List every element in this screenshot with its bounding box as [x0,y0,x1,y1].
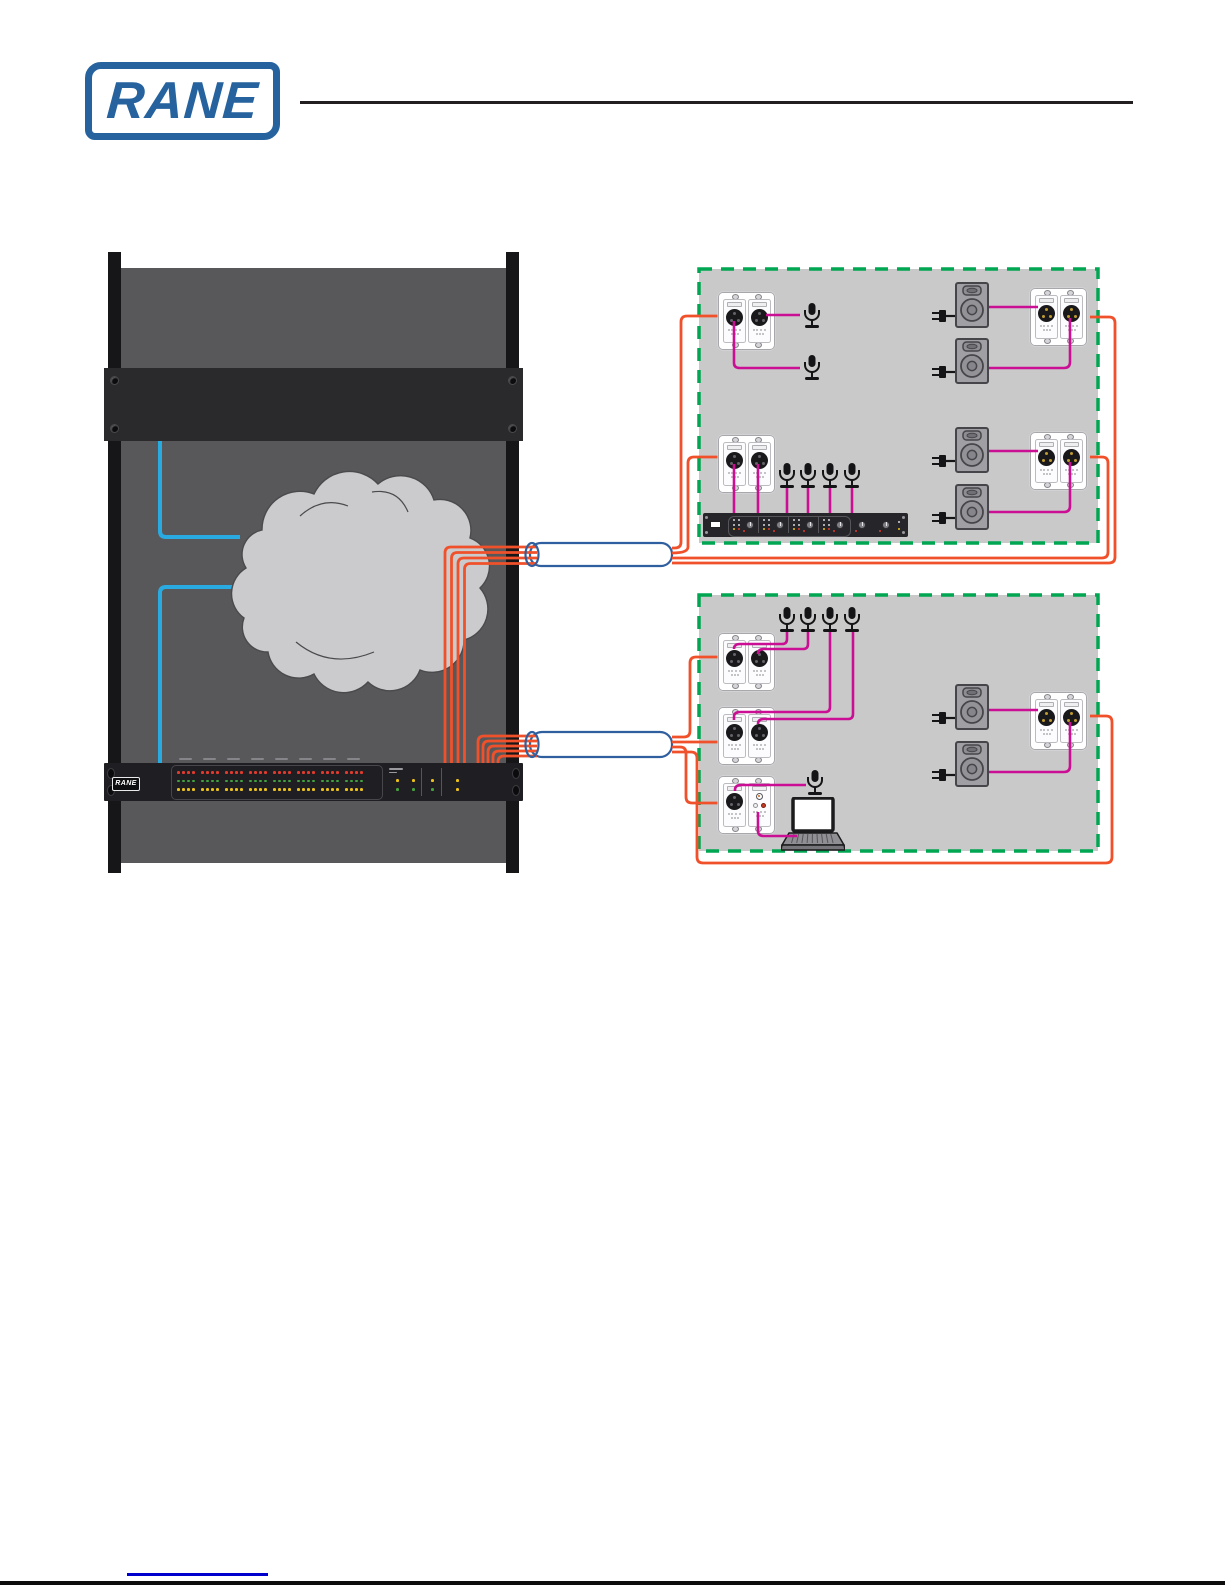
mixer-screw-icon [902,516,905,519]
label-strip [1039,702,1054,707]
mixer-led [798,524,800,526]
meter-led [192,788,195,791]
meter-label-dash [323,758,336,760]
module-marks [728,472,741,474]
meter-led [345,771,348,774]
xlr-connector-icon [1038,709,1055,726]
meter-led [355,780,358,783]
mixer-led [823,519,825,521]
rca-laptop-module [748,783,771,827]
xlr-input-module [723,442,746,486]
mixer-led [738,519,740,521]
module-marks [728,813,741,815]
meter-led [235,780,238,783]
meter-led [336,788,339,791]
module-marks [728,670,741,672]
speaker-icon [955,338,989,384]
meter-led [235,771,238,774]
plate-screw-icon [1067,338,1074,344]
meter-led [201,780,204,783]
label-strip [1064,702,1079,707]
meter-led [249,788,252,791]
module-marks [1068,329,1076,331]
status-led [431,788,434,791]
meter-led [326,771,329,774]
meter-led [187,780,190,783]
meter-label-dash [203,758,216,760]
mixer-led [823,528,825,530]
plate-screw-icon [1044,338,1051,344]
meter-led [211,780,214,783]
xlr-connector-icon [1063,305,1080,322]
room-1-boundary [699,269,1098,543]
meter-label-dash [347,758,360,760]
power-plug-icon [931,768,955,782]
mixer-knob-icon [882,521,890,529]
xlr-connector-icon [726,793,743,810]
mixer-screw-icon [902,531,905,534]
microphone-icon [819,606,841,634]
meter-led [312,771,315,774]
module-marks [753,329,766,331]
meter-led [312,788,315,791]
label-strip [727,643,742,648]
xlr-output-module [1060,699,1083,743]
plate-screw-icon [755,485,762,491]
screw-icon [508,376,517,385]
meter-led [355,788,358,791]
meter-led [254,780,257,783]
module-marks [1043,733,1051,735]
xlr-input-module [748,714,771,758]
mixer-led [763,528,765,530]
microphone-icon [776,462,798,490]
meter-led [254,771,257,774]
meter-led [187,771,190,774]
meter-led [321,780,324,783]
meter-led [264,788,267,791]
meter-led [177,771,180,774]
plate-screw-icon [732,635,739,641]
meter-label-dash [275,758,288,760]
meter-led [326,780,329,783]
meter-led [249,780,252,783]
module-marks [753,744,766,746]
meter-led [307,788,310,791]
cat5-bundle-1-end [526,543,539,566]
meter-led [345,788,348,791]
meter-led [187,788,190,791]
module-marks [756,674,764,676]
meter-led [240,788,243,791]
laptop-icon [781,797,845,853]
meter-label-dash [251,758,264,760]
plate-screw-icon [1067,742,1074,748]
rane-logo-text: RANE [105,75,260,127]
status-led [456,779,459,782]
label-strip [752,302,767,307]
module-marks [731,817,739,819]
module-marks [1040,469,1053,471]
meter-label-dash [299,758,312,760]
module-marks [1065,469,1078,471]
plate-screw-icon [732,294,739,300]
meter-led [307,771,310,774]
mixer-logo [710,521,721,528]
meter-led [326,788,329,791]
screw-icon [110,376,119,385]
cat5-cables [445,316,1115,863]
meter-led [177,788,180,791]
mixer-led [828,524,830,526]
plate-screw-icon [755,683,762,689]
microphone-icon [804,769,826,797]
meter-led [201,788,204,791]
plate-screw-icon [755,709,762,715]
plate-screw-icon [732,757,739,763]
plate-screw-icon [1044,482,1051,488]
plate-screw-icon [1067,694,1074,700]
meter-led [177,780,180,783]
cat5-bundle-1 [530,543,672,566]
mixer-led [793,528,795,530]
label-strip [752,643,767,648]
meter-led [216,771,219,774]
meter-led [331,788,334,791]
xlr-input-module [748,640,771,684]
meter-led [216,780,219,783]
meter-led [360,780,363,783]
mixer-knob-icon [858,521,866,529]
speaker-icon [955,282,989,328]
xlr-output-module [1035,439,1058,483]
mixer-led [879,530,881,532]
xlr-input-module [723,783,746,827]
microphone-icon [801,354,823,382]
meter-led [278,771,281,774]
power-plug-icon [931,365,955,379]
module-marks [728,329,741,331]
xlr-input-module [723,640,746,684]
microphone-icon [776,606,798,634]
label-strip [727,445,742,450]
meter-led [350,780,353,783]
plate-screw-icon [1044,742,1051,748]
mixer-knob-icon [836,521,844,529]
speaker-icon [955,741,989,787]
meter-label-dash [179,758,192,760]
plate-screw-icon [755,294,762,300]
mixer-led [763,524,765,526]
footer-link-underline[interactable] [127,1573,268,1576]
status-led [412,779,415,782]
xlr-connector-icon [726,650,743,667]
device-micro-label [389,768,403,770]
plate-screw-icon [1067,482,1074,488]
mixer-channel-divider [818,517,819,533]
status-led [396,779,399,782]
xlr-input-module [723,299,746,343]
plate-screw-icon [1067,290,1074,296]
meter-led [288,780,291,783]
meter-led [264,771,267,774]
module-marks [731,476,739,478]
mixer-led [833,530,835,532]
label-strip [727,786,742,791]
wallplate-room1-output-a [1030,288,1087,346]
mixer-channel-frame [728,516,851,537]
plate-screw-icon [755,757,762,763]
microphone-icon [801,302,823,330]
speaker-icon [955,484,989,530]
plate-screw-icon [1067,434,1074,440]
module-marks [1065,325,1078,327]
mixer-screw-icon [705,516,708,519]
plate-screw-icon [755,342,762,348]
xlr-output-module [1060,295,1083,339]
wallplate-room1-input-b [718,435,775,493]
mixer-led [738,524,740,526]
xlr-output-module [1060,439,1083,483]
xlr-connector-icon [726,309,743,326]
microphone-icon [797,606,819,634]
xlr-output-module [1035,295,1058,339]
mixer-screw-icon [705,531,708,534]
microphone-icon [819,462,841,490]
module-marks [1043,329,1051,331]
power-plug-icon [931,309,955,323]
page-bottom-border [0,1581,1225,1585]
meter-led [182,780,185,783]
mixer-led [793,524,795,526]
meter-led [273,771,276,774]
meter-led [345,780,348,783]
meter-led [288,771,291,774]
meter-led [283,780,286,783]
meter-led [278,780,281,783]
mixer-led [768,528,770,530]
label-strip [752,786,767,791]
cat5-bundle-2 [530,732,672,757]
module-marks [1040,729,1053,731]
mixer-led [798,519,800,521]
plate-screw-icon [732,342,739,348]
mixer-knob-icon [746,521,754,529]
meter-led [273,788,276,791]
meter-led [331,780,334,783]
meter-led [182,771,185,774]
plate-screw-icon [732,826,739,832]
module-marks [753,670,766,672]
meter-led [225,780,228,783]
xlr-input-module [748,442,771,486]
wallplate-room2-input-c [718,776,775,834]
meter-led [350,771,353,774]
meter-led [350,788,353,791]
mixer-led [798,528,800,530]
plate-screw-icon [732,683,739,689]
status-led [396,788,399,791]
meter-led [302,788,305,791]
meter-led [273,780,276,783]
plate-screw-icon [1044,434,1051,440]
power-plug-icon [931,711,955,725]
plate-screw-icon [732,778,739,784]
module-marks [731,674,739,676]
rane-logo: RANE [85,62,280,140]
mixer-channel-divider [758,517,759,533]
plate-screw-icon [755,778,762,784]
automixer-device [703,513,908,537]
label-strip [1064,298,1079,303]
meter-led [321,788,324,791]
meter-led [278,788,281,791]
meter-led [321,771,324,774]
meter-led [288,788,291,791]
module-marks [753,811,766,813]
xlr-connector-icon [751,724,768,741]
label-strip [727,302,742,307]
label-strip [752,445,767,450]
mixer-led [773,530,775,532]
meter-led [259,780,262,783]
mixer-knob-icon [806,521,814,529]
meter-led [211,788,214,791]
meter-led [360,788,363,791]
rack-ear-hole [512,768,520,779]
xlr-connector-icon [1038,449,1055,466]
meter-led [225,771,228,774]
module-marks [1068,473,1076,475]
device-logo: RANE [112,777,140,791]
rack-panel-bottom [121,801,506,863]
plate-screw-icon [732,437,739,443]
xlr-connector-icon [751,452,768,469]
mixer-led [823,524,825,526]
rack-ear-hole [512,785,520,796]
meter-label-dash [227,758,240,760]
status-divider [441,768,442,796]
microphone-icon [797,462,819,490]
wallplate-room2-input-a [718,633,775,691]
status-led [456,788,459,791]
meter-led [216,788,219,791]
meter-led [192,771,195,774]
meter-led [206,771,209,774]
mixer-led [828,528,830,530]
status-led [412,788,415,791]
microphone-icon [841,462,863,490]
module-marks [756,476,764,478]
xlr-connector-icon [751,309,768,326]
page: RANE RANE [0,0,1225,1585]
status-divider [421,768,422,796]
mixer-led [743,530,745,532]
meter-led [297,771,300,774]
wallplate-room2-input-b [718,707,775,765]
xlr-connector-icon [726,452,743,469]
meter-led [192,780,195,783]
meter-led [302,771,305,774]
mixer-knob-icon [776,521,784,529]
wallplate-room1-output-b [1030,432,1087,490]
label-strip [727,717,742,722]
mixer-led [768,519,770,521]
module-marks [728,744,741,746]
module-marks [756,815,764,817]
meter-led [254,788,257,791]
wallplate-room2-output-a [1030,692,1087,750]
screw-icon [110,424,119,433]
xlr-input-module [748,299,771,343]
meter-led [336,771,339,774]
meter-led [297,788,300,791]
module-marks [1068,733,1076,735]
meter-led [307,780,310,783]
module-marks [1043,473,1051,475]
rack-panel-middle [121,441,506,763]
xlr-input-module [723,714,746,758]
mixer-led [763,519,765,521]
xlr-connector-icon [751,650,768,667]
module-marks [756,333,764,335]
plate-screw-icon [1044,694,1051,700]
screw-icon [508,424,517,433]
xlr-output-module [1035,699,1058,743]
mixer-led [768,524,770,526]
mixer-led [855,530,857,532]
module-marks [731,748,739,750]
meter-led [283,788,286,791]
meter-led [312,780,315,783]
audio-processor-device: RANE [104,763,523,801]
meter-led [211,771,214,774]
meter-led [240,780,243,783]
mixer-channel-divider [788,517,789,533]
plate-screw-icon [1044,290,1051,296]
xlr-connector-icon [1038,305,1055,322]
meter-led [355,771,358,774]
plate-screw-icon [755,437,762,443]
mixer-led [898,528,900,530]
meter-led [297,780,300,783]
meter-led [206,780,209,783]
meter-led [259,788,262,791]
analog-audio-cables [734,307,1070,836]
plate-screw-icon [755,826,762,832]
module-marks [1065,729,1078,731]
label-strip [1039,442,1054,447]
meter-led [235,788,238,791]
wallplate-room1-input-a [718,292,775,350]
meter-led [259,771,262,774]
module-marks [756,748,764,750]
power-plug-icon [931,454,955,468]
plate-screw-icon [732,709,739,715]
meter-led [302,780,305,783]
xlr-connector-icon [726,724,743,741]
meter-led [225,788,228,791]
mixer-led [733,519,735,521]
rack-panel-top [121,268,506,368]
meter-led [331,771,334,774]
meter-led [230,771,233,774]
meter-led [240,771,243,774]
xlr-connector-icon [1063,709,1080,726]
plate-screw-icon [732,485,739,491]
rack-blank-panel [104,368,523,441]
module-marks [753,472,766,474]
